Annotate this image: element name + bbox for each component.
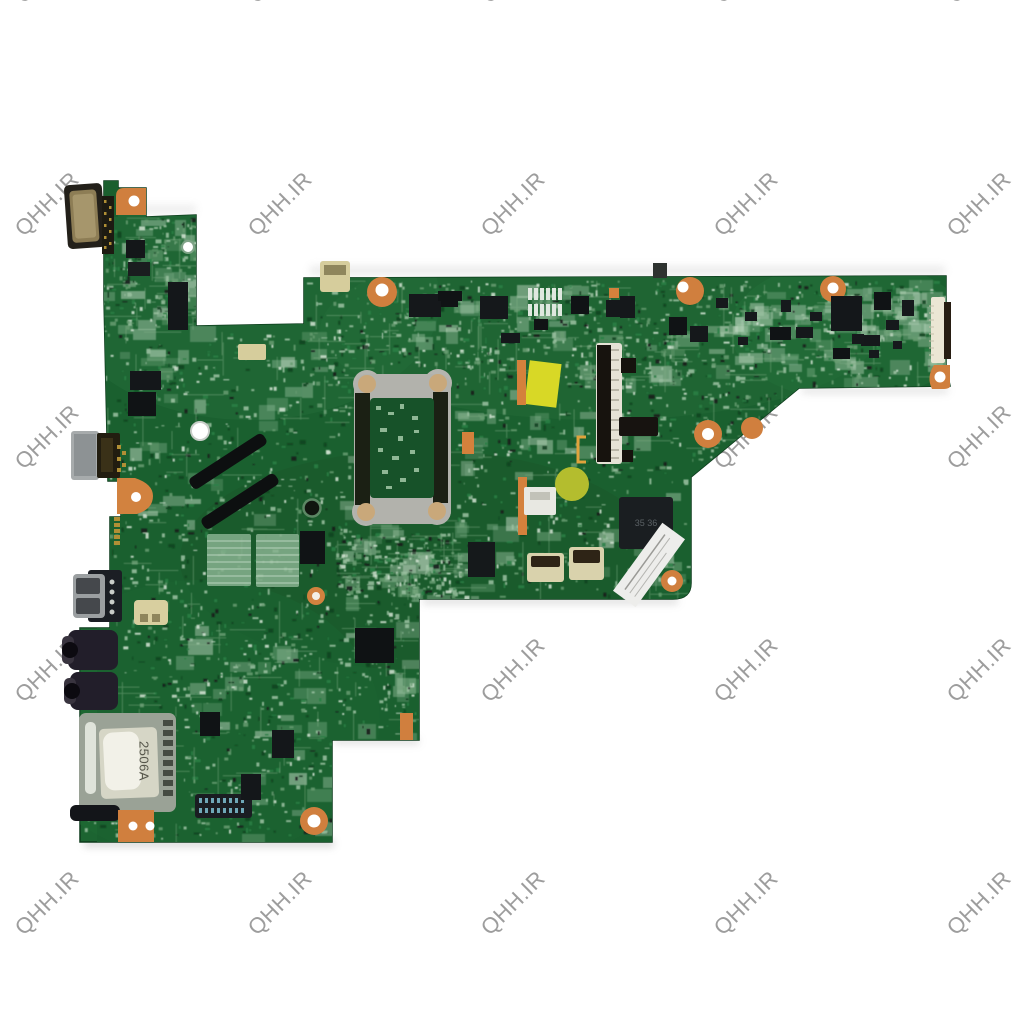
- svg-text:2506A: 2506A: [137, 741, 152, 781]
- svg-text:35 36: 35 36: [635, 518, 658, 528]
